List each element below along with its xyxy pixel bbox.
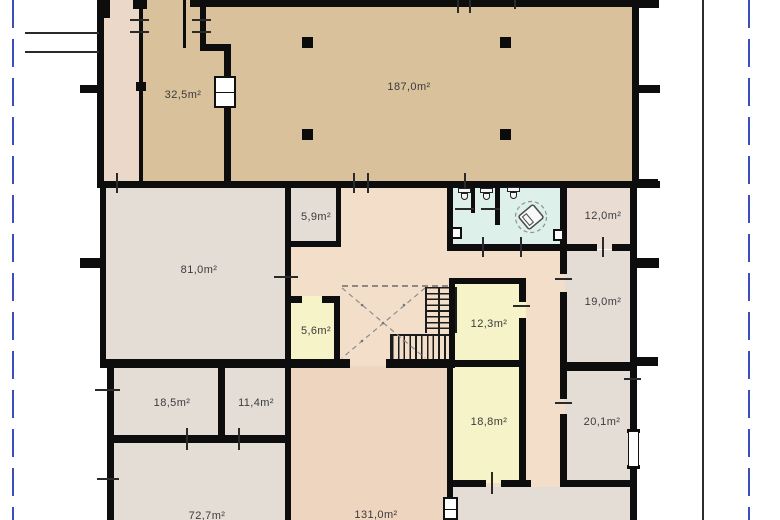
wall-segment: [449, 278, 526, 284]
room-area-label: 19,0m²: [585, 296, 622, 308]
wall-segment: [218, 364, 225, 437]
wall-segment: [639, 0, 659, 8]
wall-segment: [334, 296, 340, 363]
wall-segment: [560, 414, 567, 487]
room-131-0: [291, 366, 447, 520]
wall-segment: [100, 359, 350, 368]
wall-segment: [183, 0, 186, 48]
wall-segment: [637, 357, 658, 366]
wall-segment: [287, 296, 302, 303]
door-tick: [238, 428, 240, 450]
wall-segment: [635, 85, 660, 93]
wall-segment: [336, 187, 341, 245]
stall-door-line: [481, 208, 500, 210]
window-tick: [95, 389, 120, 391]
column-marker: [500, 37, 511, 48]
door-tick: [491, 472, 493, 494]
door-tick: [186, 428, 188, 450]
wall-segment: [630, 187, 637, 433]
window-tick: [624, 378, 641, 380]
window-tick: [353, 173, 355, 193]
toilet-icon: [480, 188, 494, 201]
wall-segment: [447, 244, 565, 251]
wall-segment: [97, 181, 660, 188]
door-tick: [602, 237, 604, 257]
window-tick: [130, 19, 149, 21]
column-marker: [302, 37, 313, 48]
window-tick: [130, 31, 149, 33]
room-area-label: 18,5m²: [154, 397, 191, 409]
sink-icon: [553, 229, 564, 241]
neighbor-wall-line: [25, 51, 99, 53]
window-tick: [116, 173, 118, 193]
room-area-label: 11,4m²: [238, 397, 274, 409]
wall-segment: [562, 480, 637, 487]
party-wall-stub: [80, 85, 100, 93]
wall-segment: [449, 480, 486, 487]
wall-segment: [630, 469, 637, 520]
wall-segment: [386, 359, 455, 368]
wall-segment: [97, 0, 110, 18]
wall-segment: [632, 0, 639, 188]
wall-segment: [526, 480, 531, 487]
room-area-label: 72,7m²: [189, 510, 226, 520]
wall-segment: [560, 362, 637, 371]
door-leaf-split: [445, 509, 456, 510]
door-tick: [274, 276, 298, 278]
toilet-icon: [458, 188, 472, 201]
door-tick: [513, 305, 530, 307]
window-mullion: [216, 92, 234, 93]
wall-segment: [139, 0, 143, 188]
window-tick: [514, 0, 516, 9]
wall-segment: [449, 360, 526, 367]
staircase-lower-run: [390, 334, 449, 361]
stall-door-line: [455, 208, 474, 210]
wall-segment: [501, 480, 526, 487]
room-area-label: 12,3m²: [471, 318, 508, 330]
room-area-label: 131,0m²: [354, 509, 397, 520]
wall-segment: [560, 292, 567, 399]
wall-segment: [519, 318, 526, 487]
window-icon: [628, 431, 639, 467]
room-area-label: 20,1m²: [584, 416, 621, 428]
wall-segment: [97, 0, 104, 188]
neighbor-wall-line: [25, 32, 99, 34]
wall-segment: [637, 258, 659, 268]
window-tick: [192, 19, 211, 21]
door-tick: [482, 237, 484, 257]
room-area-label: 12,0m²: [585, 210, 622, 222]
wall-segment: [100, 187, 106, 363]
wall-segment: [285, 187, 291, 363]
sink-icon: [451, 227, 462, 239]
door-leaf-icon: [443, 497, 458, 520]
wall-segment: [110, 435, 287, 443]
property-line: [702, 0, 704, 520]
wall-segment: [612, 244, 637, 251]
staircase-rail: [438, 287, 440, 359]
site-boundary-line-left: [12, 0, 14, 520]
wall-segment: [133, 0, 147, 9]
toilet-bowl: [510, 192, 517, 199]
window-tick: [469, 0, 471, 13]
toilet-icon: [507, 187, 521, 200]
wall-segment: [136, 82, 146, 91]
window-tick: [97, 478, 119, 480]
wall-segment: [447, 187, 453, 249]
room-area-label: 32,5m²: [165, 89, 202, 101]
wall-segment: [519, 283, 526, 302]
window-icon: [214, 76, 236, 108]
door-tick: [555, 278, 572, 280]
room-area-label: 81,0m²: [181, 264, 218, 276]
room-area-label: 187,0m²: [387, 81, 430, 93]
wall-segment: [190, 0, 637, 7]
room-72-7: [110, 440, 285, 520]
wall-segment: [449, 284, 455, 364]
room-area-label: 5,6m²: [301, 325, 331, 337]
wall-segment: [447, 363, 453, 498]
window-tick: [367, 173, 369, 193]
wall-segment: [560, 250, 567, 274]
room-area-label: 5,9m²: [301, 211, 331, 223]
toilet-bowl: [483, 193, 490, 200]
wall-segment: [224, 44, 231, 188]
column-marker: [302, 129, 313, 140]
door-tick: [520, 237, 522, 257]
window-tick: [192, 31, 211, 33]
bottom-right-room: [452, 487, 637, 520]
party-wall-stub: [80, 258, 103, 268]
wall-segment: [200, 0, 206, 48]
toilet-bowl: [461, 193, 468, 200]
door-tick: [555, 402, 572, 404]
wall-segment: [495, 187, 500, 225]
window-tick: [457, 0, 459, 13]
floor-plan: 32,5m² 187,0m² 5,9m² 12,0m² 81,0m² 19,0m…: [0, 0, 780, 520]
wall-segment: [565, 244, 597, 251]
column-marker: [500, 129, 511, 140]
wall-segment: [287, 241, 341, 247]
site-boundary-line-right: [748, 0, 750, 520]
room-area-label: 18,8m²: [471, 416, 508, 428]
